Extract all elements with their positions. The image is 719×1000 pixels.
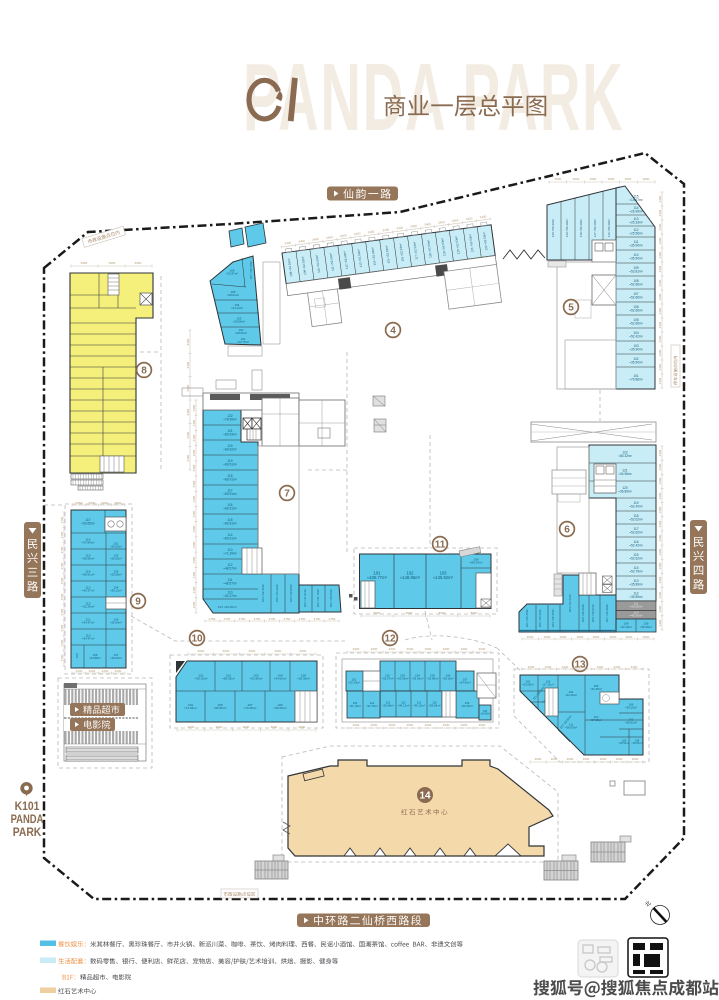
svg-text:≈32.26m²: ≈32.26m² xyxy=(565,693,577,697)
svg-text:4700: 4700 xyxy=(60,546,64,553)
svg-text:4600: 4600 xyxy=(461,647,468,651)
svg-text:3400: 3400 xyxy=(658,477,662,484)
svg-text:5950: 5950 xyxy=(76,501,83,505)
svg-text:5400: 5400 xyxy=(186,338,190,345)
svg-text:≈35.90m²: ≈35.90m² xyxy=(629,347,642,351)
svg-text:≈51.85m²: ≈51.85m² xyxy=(250,677,263,681)
svg-text:4750: 4750 xyxy=(314,617,321,621)
svg-text:101 ≈25.46m²: 101 ≈25.46m² xyxy=(525,609,529,628)
svg-text:12: 12 xyxy=(384,633,396,644)
svg-text:3400: 3400 xyxy=(658,463,662,470)
svg-text:101 ≈30.26m²: 101 ≈30.26m² xyxy=(329,589,333,608)
svg-text:3400: 3400 xyxy=(658,265,662,272)
svg-text:3600: 3600 xyxy=(600,757,607,761)
svg-text:4600: 4600 xyxy=(443,647,450,651)
svg-text:≈30.10m²: ≈30.10m² xyxy=(625,706,637,710)
svg-text:≈32.26m²: ≈32.26m² xyxy=(82,605,95,609)
svg-text:8: 8 xyxy=(141,365,147,376)
svg-text:116 ≈50.40m²: 116 ≈50.40m² xyxy=(607,219,611,237)
svg-text:≈34.47m²: ≈34.47m² xyxy=(82,637,95,641)
svg-text:≈80.32m²: ≈80.32m² xyxy=(618,454,631,458)
svg-text:3400: 3400 xyxy=(396,226,403,231)
svg-text:8000: 8000 xyxy=(471,611,478,615)
svg-text:≈36.12m²: ≈36.12m² xyxy=(398,703,410,707)
svg-text:3400: 3400 xyxy=(658,279,662,286)
svg-text:≈69.91m²: ≈69.91m² xyxy=(223,536,236,540)
svg-text:≈38.52m²: ≈38.52m² xyxy=(625,721,637,725)
svg-text:≈33.86m²: ≈33.86m² xyxy=(427,676,439,680)
svg-text:3400: 3400 xyxy=(479,214,486,219)
svg-text:4750: 4750 xyxy=(254,617,261,621)
svg-text:≈52.40m²: ≈52.40m² xyxy=(629,504,642,508)
svg-text:4200: 4200 xyxy=(102,669,109,673)
svg-text:4200: 4200 xyxy=(579,665,586,669)
svg-text:109: 109 xyxy=(75,653,79,658)
svg-text:≈57.55m²: ≈57.55m² xyxy=(590,718,602,722)
svg-text:106 ≈69.06m²: 106 ≈69.06m² xyxy=(289,584,293,603)
svg-text:3400: 3400 xyxy=(658,377,662,384)
svg-text:4200: 4200 xyxy=(562,665,569,669)
svg-text:3600: 3600 xyxy=(527,635,534,639)
svg-text:5: 5 xyxy=(568,302,574,313)
svg-text:3400: 3400 xyxy=(658,293,662,300)
svg-text:4600: 4600 xyxy=(353,647,360,651)
svg-text:5400: 5400 xyxy=(186,454,190,461)
svg-text:4750: 4750 xyxy=(299,617,306,621)
svg-text:3600: 3600 xyxy=(643,635,650,639)
svg-text:3600: 3600 xyxy=(590,177,597,181)
svg-text:≈35.90m²: ≈35.90m² xyxy=(629,243,642,247)
svg-text:4700: 4700 xyxy=(60,639,64,646)
svg-text:105 ≈29.46m²: 105 ≈29.46m² xyxy=(581,604,585,623)
svg-text:8000: 8000 xyxy=(406,611,413,615)
svg-text:3400: 3400 xyxy=(192,434,196,441)
svg-text:≈69.36m²: ≈69.36m² xyxy=(222,677,235,681)
svg-text:106 ≈36.61m²: 106 ≈36.61m² xyxy=(591,604,595,623)
svg-text:3600: 3600 xyxy=(560,635,567,639)
svg-text:≈25.56m²: ≈25.56m² xyxy=(110,572,122,576)
svg-text:≈71.04m²: ≈71.04m² xyxy=(184,706,197,710)
svg-text:3400: 3400 xyxy=(192,556,196,563)
svg-text:3400: 3400 xyxy=(192,541,196,548)
svg-text:≈49.36m²: ≈49.36m² xyxy=(640,625,652,629)
svg-text:K101: K101 xyxy=(15,801,40,814)
svg-text:≈22.23m²: ≈22.23m² xyxy=(348,680,360,684)
svg-text:107 ≈29.30m²: 107 ≈29.30m² xyxy=(218,605,237,609)
svg-text:4750: 4750 xyxy=(224,617,231,621)
svg-text:4750: 4750 xyxy=(284,617,291,621)
svg-text:4600: 4600 xyxy=(371,723,378,727)
svg-text:119 ≈50.40m²: 119 ≈50.40m² xyxy=(565,219,569,237)
svg-text:PANDA: PANDA xyxy=(11,813,44,826)
svg-text:≈26.99m²: ≈26.99m² xyxy=(629,209,642,213)
svg-text:4200: 4200 xyxy=(614,665,621,669)
svg-text:≈42.19m²: ≈42.19m² xyxy=(620,625,632,629)
svg-text:6: 6 xyxy=(564,524,570,535)
svg-text:3400: 3400 xyxy=(658,209,662,216)
svg-text:4750: 4750 xyxy=(239,617,246,621)
svg-text:4200: 4200 xyxy=(597,665,604,669)
svg-text:4600: 4600 xyxy=(425,647,432,651)
svg-text:3600: 3600 xyxy=(544,635,551,639)
svg-text:4700: 4700 xyxy=(60,577,64,584)
svg-text:≈29.58m²: ≈29.58m² xyxy=(233,320,245,324)
svg-text:3600: 3600 xyxy=(626,635,633,639)
svg-text:≈35.89m²: ≈35.89m² xyxy=(629,595,642,599)
svg-text:117 ≈50.40m²: 117 ≈50.40m² xyxy=(593,219,597,237)
svg-text:3400: 3400 xyxy=(466,216,473,221)
svg-text:5400: 5400 xyxy=(186,361,190,368)
svg-text:3600: 3600 xyxy=(555,177,562,181)
svg-text:≈52.66m²: ≈52.66m² xyxy=(629,321,642,325)
svg-text:8000: 8000 xyxy=(439,611,446,615)
svg-text:105 ≈63.32m²: 105 ≈63.32m² xyxy=(275,584,279,603)
svg-text:≈34.96m²: ≈34.96m² xyxy=(618,472,631,476)
svg-text:5400: 5400 xyxy=(186,431,190,438)
svg-text:3400: 3400 xyxy=(658,195,662,202)
svg-text:≈39.10m²: ≈39.10m² xyxy=(195,677,208,681)
svg-text:3400: 3400 xyxy=(298,239,305,244)
svg-text:≈36.89m²: ≈36.89m² xyxy=(618,489,631,493)
svg-text:4700: 4700 xyxy=(60,531,64,538)
svg-text:≈71.39m²: ≈71.39m² xyxy=(223,551,236,555)
svg-text:4750: 4750 xyxy=(209,617,216,621)
svg-text:≈52.66m²: ≈52.66m² xyxy=(629,282,642,286)
svg-text:3400: 3400 xyxy=(438,220,445,225)
svg-text:≈68.90m²: ≈68.90m² xyxy=(214,706,227,710)
svg-text:≈69.91m²: ≈69.91m² xyxy=(223,477,236,481)
svg-text:≈69.62m²: ≈69.62m² xyxy=(223,447,236,451)
svg-text:≈28.52m²: ≈28.52m² xyxy=(235,331,247,335)
svg-text:4700: 4700 xyxy=(60,654,64,661)
svg-text:≈52.42m²: ≈52.42m² xyxy=(629,543,642,547)
svg-text:3400: 3400 xyxy=(410,224,417,229)
svg-text:≈148.85m²: ≈148.85m² xyxy=(400,575,421,580)
svg-text:≈26.51m²: ≈26.51m² xyxy=(619,741,630,745)
svg-text:≈26.92m²: ≈26.92m² xyxy=(110,556,122,560)
svg-text:6000: 6000 xyxy=(216,725,223,729)
svg-text:4750: 4750 xyxy=(329,617,336,621)
svg-text:≈22.97m²: ≈22.97m² xyxy=(226,272,238,276)
svg-text:≈69.91m²: ≈69.91m² xyxy=(223,506,236,510)
svg-text:3400: 3400 xyxy=(340,233,347,238)
svg-text:≈78.99m²: ≈78.99m² xyxy=(223,417,236,421)
svg-text:3400: 3400 xyxy=(658,321,662,328)
svg-text:≈36.12m²: ≈36.12m² xyxy=(413,703,425,707)
svg-text:6000: 6000 xyxy=(188,725,195,729)
svg-text:3400: 3400 xyxy=(658,349,662,356)
svg-text:4200: 4200 xyxy=(528,665,535,669)
svg-text:≈33.06m²: ≈33.06m² xyxy=(397,676,409,680)
svg-text:4600: 4600 xyxy=(389,647,396,651)
svg-text:3400: 3400 xyxy=(312,237,319,242)
svg-text:3400: 3400 xyxy=(658,506,662,513)
svg-text:3400: 3400 xyxy=(658,520,662,527)
svg-text:3400: 3400 xyxy=(284,241,291,246)
svg-text:3400: 3400 xyxy=(658,605,662,612)
svg-text:≈35.89m²: ≈35.89m² xyxy=(629,582,642,586)
svg-text:3400: 3400 xyxy=(658,251,662,258)
svg-text:≈28.68m²: ≈28.68m² xyxy=(382,703,394,707)
svg-text:≈25.95m²: ≈25.95m² xyxy=(630,605,643,609)
svg-text:107 ≈34.38m²: 107 ≈34.38m² xyxy=(605,604,609,623)
svg-text:6000: 6000 xyxy=(198,649,205,653)
svg-text:3400: 3400 xyxy=(452,218,459,223)
svg-text:4600: 4600 xyxy=(461,723,468,727)
svg-text:3400: 3400 xyxy=(192,586,196,593)
svg-text:4600: 4600 xyxy=(443,723,450,727)
svg-text:3400: 3400 xyxy=(192,571,196,578)
svg-text:3400: 3400 xyxy=(658,534,662,541)
svg-text:3400: 3400 xyxy=(192,464,196,471)
svg-text:3400: 3400 xyxy=(658,335,662,342)
svg-text:3400: 3400 xyxy=(658,492,662,499)
svg-text:≈33.06m²: ≈33.06m² xyxy=(412,676,424,680)
svg-text:≈37.84m²: ≈37.84m² xyxy=(82,541,95,545)
svg-text:5950: 5950 xyxy=(135,261,142,265)
svg-text:103 ≈25.35m²: 103 ≈25.35m² xyxy=(551,609,555,628)
svg-text:3400: 3400 xyxy=(192,480,196,487)
svg-text:3600: 3600 xyxy=(643,177,650,181)
svg-text:≈14.67m²: ≈14.67m² xyxy=(629,198,642,202)
svg-text:≈69.91m²: ≈69.91m² xyxy=(223,492,236,496)
svg-text:≈70.28m²: ≈70.28m² xyxy=(244,706,257,710)
svg-text:≈17.11m²: ≈17.11m² xyxy=(542,682,554,686)
svg-text:PANDA PARK: PANDA PARK xyxy=(243,43,624,150)
svg-text:3600: 3600 xyxy=(616,757,623,761)
svg-text:4600: 4600 xyxy=(353,723,360,727)
svg-text:≈43.37m²: ≈43.37m² xyxy=(82,589,95,593)
svg-text:5950: 5950 xyxy=(89,501,96,505)
svg-text:10: 10 xyxy=(191,633,203,644)
svg-text:14: 14 xyxy=(419,790,431,801)
svg-text:6000: 6000 xyxy=(223,649,230,653)
svg-text:120 ≈50.40m²: 120 ≈50.40m² xyxy=(551,219,555,238)
svg-text:104 ≈64.61m²: 104 ≈64.61m² xyxy=(568,594,572,613)
svg-text:3600: 3600 xyxy=(567,757,574,761)
svg-text:≈34.37m²: ≈34.37m² xyxy=(223,594,236,598)
svg-text:107 ≈60.70m²: 107 ≈60.70m² xyxy=(249,261,253,280)
svg-text:3400: 3400 xyxy=(658,223,662,230)
svg-text:3400: 3400 xyxy=(192,419,196,426)
svg-text:≈45.30m²: ≈45.30m² xyxy=(630,614,643,618)
svg-text:≈36.91m²: ≈36.91m² xyxy=(82,573,95,577)
svg-text:3400: 3400 xyxy=(658,548,662,555)
svg-text:118 ≈50.40m²: 118 ≈50.40m² xyxy=(579,219,583,237)
svg-text:6000: 6000 xyxy=(243,725,250,729)
svg-text:≈52.42m²: ≈52.42m² xyxy=(629,334,642,338)
svg-text:≈28.01m²: ≈28.01m² xyxy=(227,293,239,297)
svg-text:3400: 3400 xyxy=(658,363,662,370)
svg-text:102 ≈31.70m²: 102 ≈31.70m² xyxy=(316,589,320,608)
svg-text:4200: 4200 xyxy=(631,665,638,669)
svg-text:≈106.77m²: ≈106.77m² xyxy=(367,575,388,580)
svg-text:4600: 4600 xyxy=(425,723,432,727)
svg-text:4200: 4200 xyxy=(115,669,122,673)
svg-text:≈26.90m²: ≈26.90m² xyxy=(480,713,490,716)
svg-text:3400: 3400 xyxy=(658,591,662,598)
svg-text:4200: 4200 xyxy=(76,669,83,673)
svg-text:PARK: PARK xyxy=(13,827,42,840)
svg-text:≈29.65m²: ≈29.65m² xyxy=(429,703,441,707)
svg-text:4200: 4200 xyxy=(545,665,552,669)
svg-text:104 ≈62.35m²: 104 ≈62.35m² xyxy=(261,584,265,603)
svg-text:11: 11 xyxy=(435,539,446,550)
svg-text:5950: 5950 xyxy=(115,501,122,505)
svg-text:3400: 3400 xyxy=(192,601,196,608)
svg-text:≈24.42m²: ≈24.42m² xyxy=(459,680,471,684)
svg-text:≈53.81m²: ≈53.81m² xyxy=(629,269,642,273)
svg-text:≈52.66m²: ≈52.66m² xyxy=(629,308,642,312)
svg-text:5950: 5950 xyxy=(102,501,109,505)
svg-text:5950: 5950 xyxy=(81,261,88,265)
svg-text:≈89.33m²: ≈89.33m² xyxy=(470,561,483,565)
svg-text:9: 9 xyxy=(135,596,141,607)
svg-text:3600: 3600 xyxy=(577,635,584,639)
svg-text:≈26.51m²: ≈26.51m² xyxy=(632,741,643,745)
svg-text:≈44.14m²: ≈44.14m² xyxy=(231,306,243,310)
svg-text:3600: 3600 xyxy=(608,177,615,181)
svg-text:≈25.33m²: ≈25.33m² xyxy=(629,220,642,224)
svg-text:3600: 3600 xyxy=(583,757,590,761)
svg-text:4600: 4600 xyxy=(479,647,486,651)
svg-text:4600: 4600 xyxy=(371,647,378,651)
svg-text:≈76.86m²: ≈76.86m² xyxy=(629,377,642,381)
svg-text:3400: 3400 xyxy=(658,237,662,244)
svg-text:3400: 3400 xyxy=(192,404,196,411)
svg-text:6000: 6000 xyxy=(249,649,256,653)
svg-text:3600: 3600 xyxy=(551,757,558,761)
svg-text:≈34.60m²: ≈34.60m² xyxy=(274,677,287,681)
svg-text:≈25.64m²: ≈25.64m² xyxy=(110,620,122,624)
svg-text:4600: 4600 xyxy=(407,723,414,727)
svg-text:≈35.99m²: ≈35.99m² xyxy=(82,557,95,561)
svg-text:4700: 4700 xyxy=(60,562,64,569)
svg-text:≈52.66m²: ≈52.66m² xyxy=(629,295,642,299)
svg-text:≈53.65m²: ≈53.65m² xyxy=(81,521,94,525)
svg-text:3600: 3600 xyxy=(535,757,542,761)
svg-text:3600: 3600 xyxy=(573,177,580,181)
svg-text:4700: 4700 xyxy=(60,593,64,600)
svg-text:6000: 6000 xyxy=(271,725,278,729)
svg-text:3400: 3400 xyxy=(367,229,374,234)
svg-text:3400: 3400 xyxy=(192,525,196,532)
svg-text:≈49.00m²: ≈49.00m² xyxy=(110,656,122,660)
svg-text:≈56.63m²: ≈56.63m² xyxy=(565,726,577,730)
svg-text:≈31.35m²: ≈31.35m² xyxy=(590,687,602,691)
svg-text:≈22.79m²: ≈22.79m² xyxy=(366,704,378,708)
svg-text:≈69.91m²: ≈69.91m² xyxy=(223,462,236,466)
svg-text:≈33.03m²: ≈33.03m² xyxy=(110,544,122,548)
svg-text:7: 7 xyxy=(284,488,290,499)
svg-text:≈26.30m²: ≈26.30m² xyxy=(297,677,310,681)
svg-text:6000: 6000 xyxy=(299,725,306,729)
svg-text:≈30.12m²: ≈30.12m² xyxy=(110,588,122,592)
svg-text:4600: 4600 xyxy=(389,723,396,727)
svg-text:4600: 4600 xyxy=(407,647,414,651)
svg-text:≈52.62m²: ≈52.62m² xyxy=(629,556,642,560)
svg-text:3400: 3400 xyxy=(192,495,196,502)
svg-text:4600: 4600 xyxy=(479,723,486,727)
svg-text:3400: 3400 xyxy=(192,449,196,456)
svg-text:≈35.90m²: ≈35.90m² xyxy=(629,360,642,364)
svg-text:6000: 6000 xyxy=(275,649,282,653)
svg-text:3400: 3400 xyxy=(658,307,662,314)
svg-text:≈52.62m²: ≈52.62m² xyxy=(629,517,642,521)
svg-text:3600: 3600 xyxy=(610,635,617,639)
svg-text:4700: 4700 xyxy=(60,516,64,523)
svg-text:103 ≈31.91m²: 103 ≈31.91m² xyxy=(303,589,307,608)
svg-text:≈46.35m²: ≈46.35m² xyxy=(461,704,473,708)
svg-text:≈34.88m²: ≈34.88m² xyxy=(89,656,101,660)
svg-text:≈25.56m²: ≈25.56m² xyxy=(629,231,642,235)
svg-text:5400: 5400 xyxy=(186,408,190,415)
svg-text:3400: 3400 xyxy=(326,235,333,240)
svg-text:≈31.79m²: ≈31.79m² xyxy=(349,704,361,708)
svg-text:≈35.90m²: ≈35.90m² xyxy=(629,256,642,260)
svg-text:≈22.06m²: ≈22.06m² xyxy=(522,682,534,686)
svg-text:3400: 3400 xyxy=(658,449,662,456)
svg-text:4750: 4750 xyxy=(269,617,276,621)
svg-text:8000: 8000 xyxy=(374,611,381,615)
svg-text:≈52.62m²: ≈52.62m² xyxy=(629,530,642,534)
svg-text:≈48.57m²: ≈48.57m² xyxy=(223,566,236,570)
svg-text:4: 4 xyxy=(390,325,396,336)
svg-text:≈69.91m²: ≈69.91m² xyxy=(223,521,236,525)
svg-text:3600: 3600 xyxy=(625,177,632,181)
svg-text:3600: 3600 xyxy=(632,757,639,761)
svg-text:6000: 6000 xyxy=(300,649,307,653)
svg-text:3400: 3400 xyxy=(658,562,662,569)
svg-text:≈53.79m²: ≈53.79m² xyxy=(629,569,642,573)
svg-text:3400: 3400 xyxy=(382,227,389,232)
svg-text:≈69.93m²: ≈69.93m² xyxy=(223,432,236,436)
svg-text:≈26.75m²: ≈26.75m² xyxy=(237,340,249,344)
svg-text:3600: 3600 xyxy=(593,635,600,639)
svg-text:≈48.57m²: ≈48.57m² xyxy=(223,581,236,585)
svg-text:3400: 3400 xyxy=(354,231,361,236)
svg-text:≈145.52m²: ≈145.52m² xyxy=(433,575,454,580)
svg-text:≈38.16m²: ≈38.16m² xyxy=(442,676,454,680)
svg-text:3400: 3400 xyxy=(424,222,431,227)
svg-text:3400: 3400 xyxy=(658,619,662,626)
svg-text:4200: 4200 xyxy=(89,669,96,673)
svg-text:3400: 3400 xyxy=(658,576,662,583)
svg-text:≈34.47m²: ≈34.47m² xyxy=(82,621,95,625)
svg-text:3400: 3400 xyxy=(192,510,196,517)
svg-text:102 ≈25.46m²: 102 ≈25.46m² xyxy=(538,609,542,628)
svg-text:5950: 5950 xyxy=(109,261,116,265)
svg-text:≈66.63m²: ≈66.63m² xyxy=(274,706,287,710)
svg-text:4700: 4700 xyxy=(60,608,64,615)
svg-text:≈32.57m²: ≈32.57m² xyxy=(382,676,394,680)
svg-text:4700: 4700 xyxy=(60,624,64,631)
